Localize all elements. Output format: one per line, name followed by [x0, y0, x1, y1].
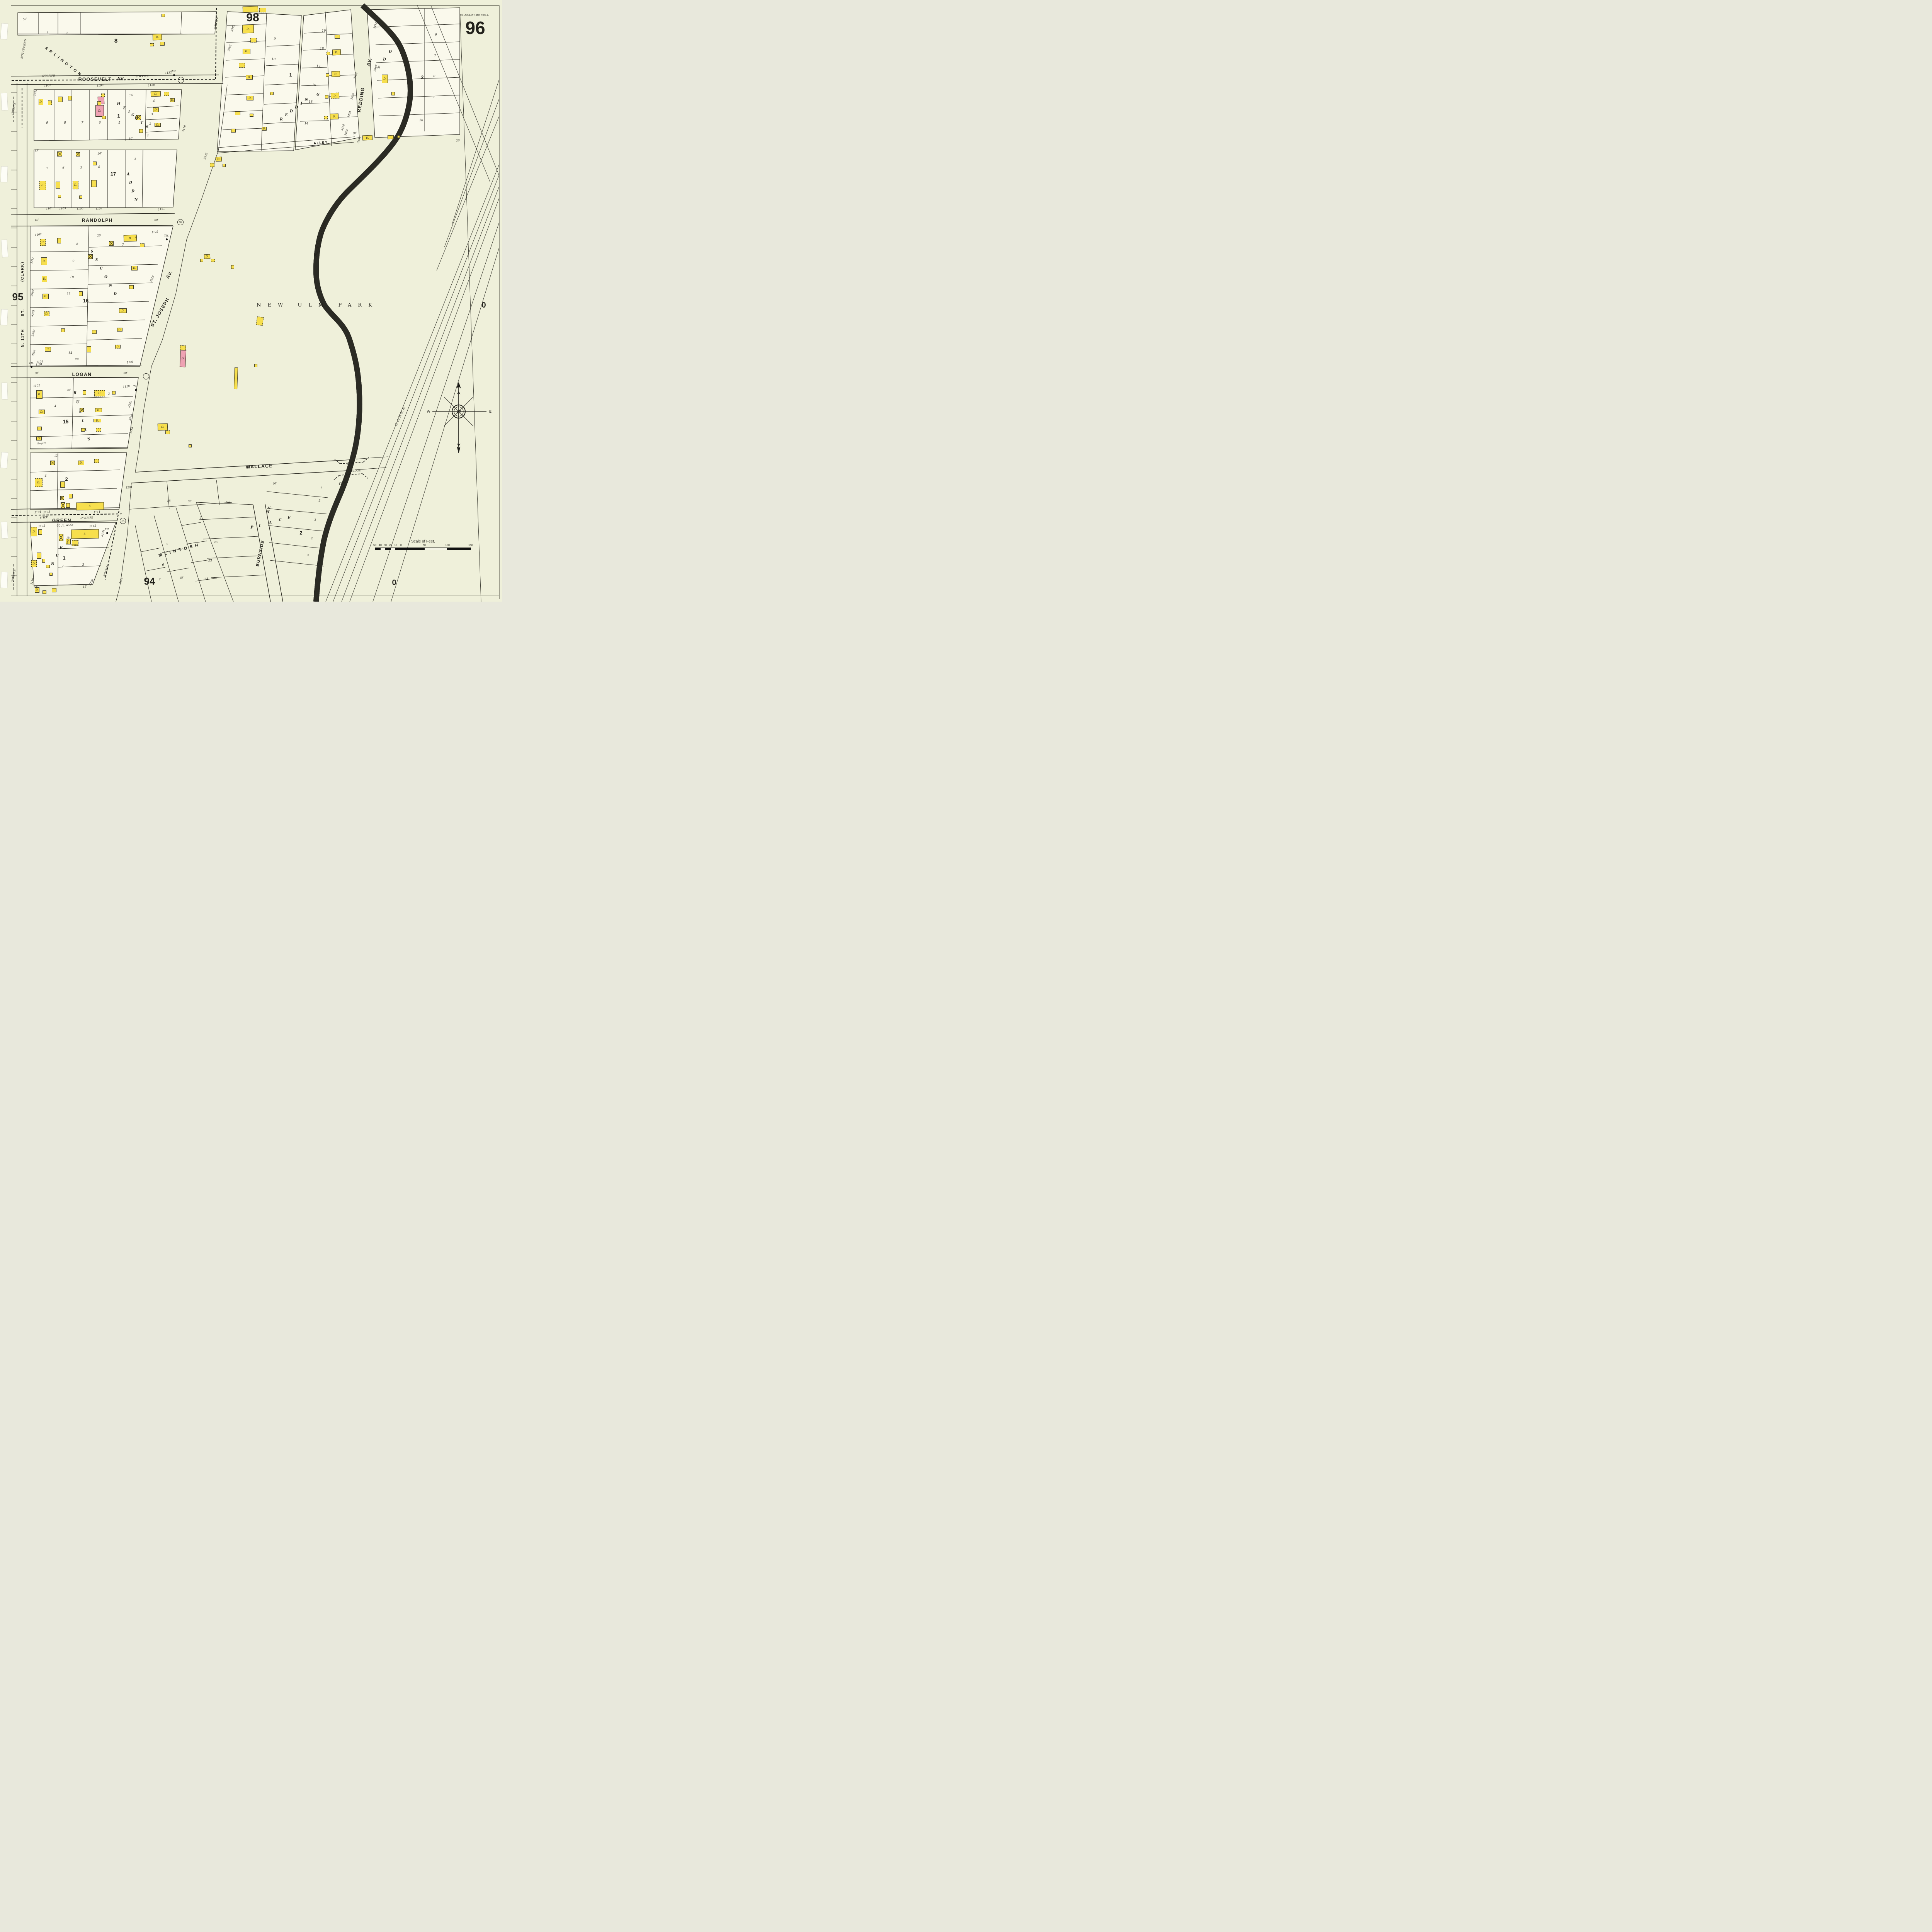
- building-frame: [79, 196, 82, 199]
- fire-hydrant-marker: T.H.: [31, 366, 32, 368]
- scale-segment: [391, 548, 396, 550]
- label-h: H: [117, 103, 121, 106]
- label-n: N: [109, 284, 112, 288]
- corner-mark-bottom: 0: [392, 579, 396, 587]
- building-frame: [254, 364, 257, 367]
- label-6: 6: [435, 33, 437, 36]
- building-frame: [61, 328, 65, 332]
- building-frame: D.: [332, 71, 340, 77]
- label-l: L: [82, 420, 84, 423]
- label-6: 6: [162, 563, 164, 566]
- building-frame: [79, 291, 83, 296]
- hydrant-label: T.H.: [105, 528, 109, 531]
- scale-tick: 20: [389, 544, 392, 547]
- torn-edge-fragment: [0, 572, 8, 588]
- building-frame: [38, 529, 42, 535]
- label-6-w-p: 6"W.P.: [40, 516, 48, 519]
- block-17: [34, 150, 177, 208]
- adjacent-sheet-top: 98: [246, 12, 259, 24]
- building-frame: [180, 345, 186, 350]
- label-b: B: [51, 563, 54, 566]
- building-frame: D.: [331, 93, 340, 99]
- label-50: 50': [272, 482, 277, 485]
- label-8: 8: [433, 75, 435, 78]
- label-9: 9: [46, 121, 48, 124]
- label-2: 2: [421, 75, 424, 80]
- label-2: 2: [299, 531, 302, 536]
- torn-edge-fragment: [1, 383, 8, 400]
- building-frame: [93, 162, 97, 165]
- label-5: 5: [80, 166, 82, 169]
- building-frame: [60, 496, 64, 500]
- building-frame: D.: [362, 135, 372, 141]
- building-frame: [256, 316, 264, 326]
- scale-tick: 40: [379, 544, 382, 547]
- label-18: 18: [320, 47, 324, 50]
- fire-hydrant-marker: T.H.: [166, 238, 168, 240]
- fire-hydrant-marker: T.H.: [135, 389, 137, 391]
- street-circle-symbol: 80: [177, 219, 184, 225]
- adjacent-sheet-left: 95: [12, 292, 24, 302]
- label-s: 'S: [87, 438, 90, 442]
- scale-segment: [401, 548, 424, 550]
- building-frame: [388, 135, 394, 139]
- building-frame: D.: [332, 49, 341, 56]
- building-frame: D.: [35, 478, 43, 487]
- street-circle-symbol: 7A: [120, 518, 126, 524]
- label-8: 8: [64, 121, 66, 124]
- scale-segment: [385, 548, 391, 550]
- building-frame: [165, 430, 170, 434]
- building-frame: [50, 461, 55, 465]
- building-frame: [59, 534, 63, 541]
- label-n-11th: N. 11TH: [21, 329, 25, 347]
- building-frame: [92, 330, 97, 334]
- block-1-heights: [34, 90, 182, 141]
- label-4: 4: [153, 100, 155, 103]
- building-frame: D.: [40, 239, 46, 246]
- building-frame: D.: [153, 107, 159, 112]
- svg-text:⨁: ⨁: [457, 410, 461, 414]
- label-1: 1: [289, 73, 292, 77]
- label-green: GREEN: [52, 518, 71, 523]
- torn-edge-fragment: [0, 309, 8, 326]
- building-frame: D.: [262, 127, 267, 131]
- building-frame: [57, 238, 61, 243]
- building-frame: [97, 101, 101, 105]
- compass-rose: ⨁ W E: [427, 383, 492, 453]
- label-1: 1: [63, 556, 65, 561]
- building-frame: [211, 259, 215, 262]
- label-16: 16': [129, 94, 134, 97]
- volume-title: ST. JOSEPH, MO. VOL.1.: [460, 14, 489, 17]
- building-frame: D.: [45, 347, 51, 352]
- label-u: U: [76, 401, 79, 405]
- building-frame: [210, 163, 214, 167]
- label-a: A: [378, 66, 380, 70]
- label-4: 4: [54, 405, 56, 408]
- building-frame: [162, 14, 165, 17]
- building-frame: [223, 164, 226, 167]
- label-50: 50': [226, 501, 230, 504]
- label-9: 9: [72, 260, 74, 263]
- label-wallace: WALLACE: [246, 463, 273, 469]
- label-50: 50': [23, 18, 27, 21]
- building-frame: [37, 427, 42, 430]
- label-o: O: [104, 276, 107, 279]
- label-1: 1: [200, 516, 202, 519]
- park-name: NEW ULM PARK: [257, 303, 379, 308]
- label-e: E: [79, 410, 82, 414]
- label-d: D: [290, 110, 293, 114]
- label-5: 5: [118, 121, 120, 124]
- building-frame: D.: [94, 390, 105, 396]
- label-3: 3: [134, 158, 136, 161]
- label-e: E: [60, 547, 63, 550]
- label-6: 6: [99, 121, 100, 124]
- scale-segment: [396, 548, 401, 550]
- label-n: 'N: [134, 199, 138, 202]
- building-frame: [259, 8, 266, 12]
- label-d: D: [389, 51, 392, 54]
- building-frame: [235, 111, 240, 115]
- building-frame: [129, 285, 134, 289]
- street-circle-symbol: [178, 77, 184, 83]
- label-12: 12': [83, 585, 87, 588]
- label-p: P: [251, 526, 253, 530]
- building-frame: [46, 565, 50, 568]
- label-60: 60': [123, 372, 128, 375]
- building-frame: D.: [117, 328, 122, 332]
- adjacent-sheet-bottom: 94: [144, 576, 155, 586]
- building-frame: D.: [39, 181, 46, 190]
- scale-segment: [380, 548, 385, 550]
- building-frame: [101, 94, 105, 97]
- building-frame: [324, 116, 328, 119]
- label-30: 30': [188, 500, 192, 503]
- label-60: 60': [35, 219, 39, 222]
- building-frame: D.: [151, 91, 161, 97]
- building-frame: [327, 52, 330, 55]
- label-a: A: [269, 522, 272, 525]
- label-20: 20': [75, 358, 80, 361]
- label-17: 17: [111, 172, 116, 177]
- label-15: 15': [34, 149, 39, 152]
- corner-mark-right: 0: [481, 301, 486, 309]
- map-canvas: ⨁ W E ST. JOSEPH, MO. VOL.1. 96 98 95 94…: [0, 0, 502, 602]
- label-15: 15: [63, 419, 68, 424]
- building-frame: D.: [153, 34, 162, 41]
- label-24: 24: [204, 578, 208, 581]
- building-frame: D.: [330, 114, 339, 120]
- label-7: 7: [434, 54, 436, 57]
- label-i: I: [128, 111, 130, 114]
- label-17: 17: [316, 65, 320, 68]
- label-16: 16: [83, 298, 88, 303]
- label-1: 1: [320, 487, 322, 490]
- hydrant-label: T.H.: [164, 235, 169, 237]
- building-frame: [42, 559, 45, 563]
- label-w-ho: W.HO.: [71, 544, 79, 547]
- building-brick: D.: [180, 350, 186, 367]
- label-26: 26: [214, 541, 218, 544]
- building-frame: [164, 92, 169, 96]
- label-2: 2: [135, 236, 137, 239]
- building-frame: [391, 92, 395, 95]
- label-12: 12: [270, 93, 274, 96]
- label-9: 9: [274, 37, 276, 41]
- building-frame: [325, 95, 328, 99]
- building-frame: [69, 494, 73, 498]
- label-d: D: [131, 190, 134, 194]
- label-15: 15': [179, 577, 184, 580]
- building-frame: [60, 481, 65, 488]
- label-u: U: [56, 554, 59, 558]
- label-n: 'N: [395, 43, 400, 46]
- label-7: 7: [158, 578, 160, 581]
- building-frame: [150, 43, 154, 46]
- building-frame: [52, 588, 56, 592]
- building-frame: [239, 63, 245, 68]
- label-r: R: [280, 118, 282, 122]
- label-12: 12': [54, 454, 59, 457]
- building-frame: [61, 502, 65, 509]
- building-frame: D.: [216, 157, 222, 162]
- label-12: 12': [33, 586, 38, 589]
- label-l: L: [85, 429, 87, 432]
- building-frame: [326, 73, 329, 77]
- label-7: 7: [46, 167, 48, 170]
- torn-edge-fragment: [1, 93, 8, 111]
- label-6-w-pipe: 6"W.PIPE: [42, 75, 55, 78]
- label-20: 20': [97, 152, 102, 155]
- hydrant-label: T.H.: [133, 385, 138, 388]
- hydrant-label: T.H.: [29, 362, 34, 365]
- fire-hydrant-marker: T.H.: [173, 74, 175, 76]
- building-frame: [231, 265, 234, 269]
- label-10: 10: [272, 58, 276, 61]
- building-frame: D.: [247, 96, 253, 100]
- scale-tick: 30: [384, 544, 387, 547]
- building-frame: [189, 444, 192, 447]
- label-s: S: [146, 126, 149, 129]
- building-frame: [76, 152, 80, 156]
- building-frame: D.: [78, 461, 84, 465]
- building-frame: [68, 96, 72, 100]
- label-c: C: [279, 519, 281, 522]
- building-frame: D.: [94, 419, 101, 422]
- label-1: 1: [117, 114, 120, 119]
- building-frame: D.: [39, 410, 45, 414]
- label-1: 1: [147, 134, 149, 137]
- building-frame: D.: [41, 257, 47, 265]
- label-s: S: [91, 250, 94, 254]
- building-frame: [200, 259, 203, 262]
- label-logan: LOGAN: [72, 372, 92, 377]
- building-frame: D.: [42, 276, 47, 282]
- building-frame: [56, 182, 60, 189]
- label-8: 8: [76, 243, 78, 246]
- label-roosevelt: ROOSEVELT: [78, 77, 112, 82]
- building-frame: [102, 116, 106, 119]
- label-19: 19: [322, 29, 326, 32]
- block-redding-east: [367, 8, 460, 138]
- building-frame: [91, 180, 97, 187]
- building-frame: [160, 42, 165, 46]
- hydrant-label: T.H.: [172, 70, 176, 73]
- building-frame: [96, 428, 101, 432]
- label-e: E: [95, 259, 98, 262]
- label-a: A: [127, 173, 130, 177]
- scale-segment: [424, 548, 447, 550]
- label-20: 20': [97, 234, 102, 237]
- scale-segment: [375, 548, 380, 550]
- compass-east: E: [489, 410, 492, 413]
- scale-tick: 150: [468, 544, 473, 547]
- building-frame: [58, 97, 63, 102]
- building-frame: D.: [31, 560, 37, 567]
- label-3: 3: [314, 519, 316, 522]
- building-frame: D.: [155, 123, 161, 127]
- label-25: 25: [208, 559, 212, 562]
- building-frame: [94, 459, 99, 463]
- label-h: H: [135, 117, 138, 121]
- building-frame: [88, 254, 93, 259]
- building-frame: [112, 391, 116, 395]
- label-g: G: [316, 94, 320, 97]
- label-e: E: [123, 107, 126, 111]
- map-linework: ⨁ W E: [0, 0, 502, 602]
- torn-edge-fragment: [0, 166, 8, 183]
- label-2: 2: [318, 499, 320, 502]
- label-60: 60': [34, 372, 39, 375]
- building-frame: [397, 135, 400, 138]
- label-60-ft-wide: 60 ft. wide: [56, 524, 73, 527]
- torn-edge-fragment: [1, 522, 8, 539]
- label-2: 2: [66, 32, 68, 35]
- label-randolph: RANDOLPH: [82, 218, 113, 223]
- label-6-w-pipe: 6"W.PIPE: [136, 75, 148, 78]
- block-top-center: [217, 12, 301, 151]
- label-7: 7: [122, 243, 124, 247]
- label-3: 3: [151, 113, 153, 116]
- torn-edge-fragment: [0, 452, 9, 468]
- street-circle-symbol: [143, 373, 149, 379]
- sanborn-map-sheet: ⨁ W E ST. JOSEPH, MO. VOL.1. 96 98 95 94…: [0, 0, 502, 602]
- label-7: 7: [81, 121, 83, 124]
- torn-edge-fragment: [0, 23, 9, 39]
- building-frame: D.: [170, 98, 175, 102]
- label-b: B: [73, 392, 77, 395]
- compass-west: W: [427, 410, 430, 413]
- building-frame: D.: [31, 527, 37, 536]
- label-5: 5: [166, 543, 168, 546]
- building-frame: D.: [158, 423, 168, 431]
- building-frame: [43, 590, 46, 594]
- building-frame: [37, 553, 41, 559]
- building-frame: [48, 100, 52, 105]
- building-frame: D.: [36, 390, 43, 399]
- building-frame: [139, 129, 143, 133]
- label-g: G: [131, 114, 134, 117]
- torn-edge-fragment: [1, 239, 8, 257]
- building-frame: D.: [36, 437, 42, 440]
- building-frame: D.: [43, 294, 49, 299]
- label-4: 4: [44, 474, 46, 478]
- building-frame: D.: [242, 24, 254, 33]
- label-9: 9: [432, 96, 434, 99]
- fire-hydrant-marker: T.H.: [106, 532, 108, 534]
- label-26: 26': [456, 139, 461, 142]
- building-frame: [57, 151, 62, 156]
- label-5: 5: [307, 554, 309, 557]
- building-frame: [231, 129, 236, 133]
- building-frame: S.: [71, 529, 99, 539]
- building-frame: D.: [39, 99, 43, 105]
- label-e: E: [285, 114, 288, 117]
- scale-title: Scale of Feet.: [411, 540, 435, 544]
- scale-segment: [447, 548, 471, 550]
- building-frame: [335, 35, 340, 39]
- label-av: AV.: [117, 77, 126, 81]
- building-frame: [109, 241, 114, 246]
- label-n: N: [305, 99, 308, 102]
- label-d: D: [129, 182, 132, 185]
- label-e: E: [288, 517, 291, 520]
- label-4: 4: [311, 537, 313, 540]
- label-1: 1: [46, 32, 48, 35]
- label-4: 4: [98, 166, 100, 169]
- label-20: 20': [66, 389, 71, 392]
- sheet-number: 96: [465, 19, 485, 37]
- building-frame: D.: [115, 345, 121, 349]
- label-clark: (CLARK): [21, 262, 25, 282]
- label-14: 14: [304, 122, 308, 125]
- building-frame: D.: [204, 254, 211, 259]
- building-frame: D.: [119, 308, 127, 313]
- building-frame: [250, 38, 257, 43]
- building-brick: D.: [95, 105, 104, 117]
- building-frame: D.: [131, 266, 138, 270]
- label-25: 25': [167, 500, 172, 503]
- building-frame: [83, 390, 86, 395]
- building-frame: D.: [73, 181, 78, 189]
- building-frame: D.: [44, 311, 49, 316]
- label-15: 15: [309, 100, 313, 104]
- building-frame: [58, 195, 61, 198]
- building-frame: [140, 243, 145, 247]
- building-frame: [87, 346, 91, 352]
- building-frame: D.: [95, 408, 102, 412]
- label-2: 2: [108, 393, 110, 396]
- label-8: 8: [114, 38, 117, 44]
- scale-tick: 10: [394, 544, 397, 547]
- label-10: 10: [419, 119, 423, 122]
- label-st: ST.: [21, 309, 25, 316]
- label-16: 16: [312, 84, 316, 87]
- building-frame: [49, 573, 53, 576]
- scale-tick: 50: [373, 544, 376, 547]
- block-15: [30, 378, 138, 449]
- building-frame: [66, 503, 70, 508]
- label-6: 6: [62, 167, 64, 170]
- label-t: T: [141, 122, 143, 125]
- label-l: L: [259, 525, 261, 528]
- building-frame: S.: [76, 502, 104, 510]
- label-11: 11: [67, 292, 71, 295]
- scale-tick: 100: [445, 544, 450, 547]
- building-frame: D.: [246, 75, 253, 80]
